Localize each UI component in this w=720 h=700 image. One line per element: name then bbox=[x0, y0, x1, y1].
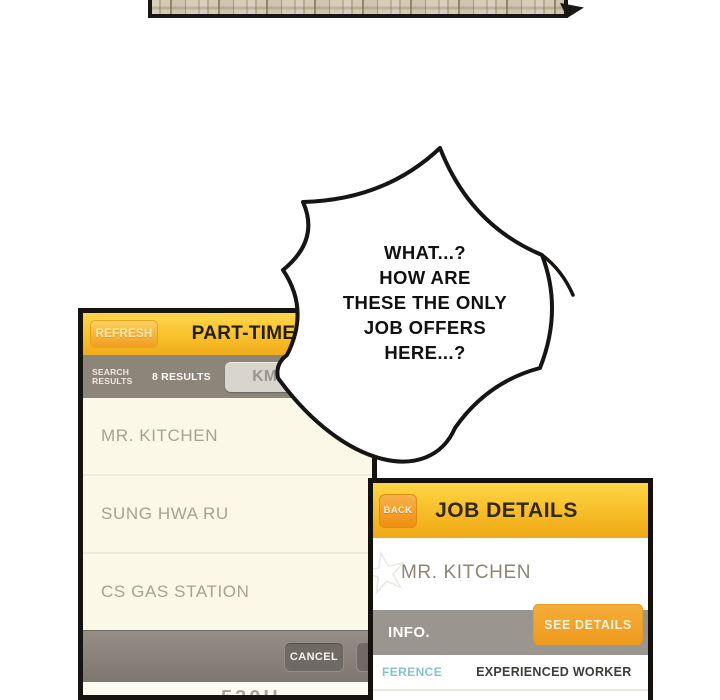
bubble-line: WHAT...? bbox=[295, 240, 555, 265]
job-listing-row[interactable]: SUNG HWA RU bbox=[83, 476, 372, 554]
details-panel-title: JOB DETAILS bbox=[417, 499, 642, 523]
search-footer-strip: 530H bbox=[83, 682, 372, 695]
business-name-section: ☆ MR. KITCHEN bbox=[373, 538, 648, 610]
cutoff-text: 530H bbox=[221, 687, 281, 695]
search-bottom-bar: CANCEL bbox=[83, 630, 372, 682]
job-listing-row[interactable]: CS GAS STATION bbox=[83, 554, 372, 630]
preference-value: EXPERIENCED WORKER bbox=[476, 665, 631, 679]
back-button[interactable]: BACK bbox=[379, 494, 417, 528]
preference-label: FERENCE bbox=[382, 665, 442, 679]
info-bar: INFO. SEE DETAILS bbox=[373, 610, 648, 655]
business-name: MR. KITCHEN bbox=[373, 538, 648, 608]
preference-row: FERENCE EXPERIENCED WORKER bbox=[373, 655, 648, 691]
bubble-line: JOB OFFERS bbox=[295, 315, 555, 340]
bubble-line: HOW ARE bbox=[295, 265, 555, 290]
results-count: 8 RESULTS bbox=[152, 371, 211, 383]
speech-bubble-text: WHAT...? HOW ARE THESE THE ONLY JOB OFFE… bbox=[295, 240, 555, 365]
see-details-button[interactable]: SEE DETAILS bbox=[533, 604, 643, 645]
bubble-line: HERE...? bbox=[295, 340, 555, 365]
comic-panel-strip bbox=[148, 0, 568, 18]
cancel-button[interactable]: CANCEL bbox=[284, 642, 344, 672]
job-details-panel: BACK JOB DETAILS ☆ MR. KITCHEN INFO. SEE… bbox=[368, 478, 653, 700]
details-panel-body bbox=[373, 691, 648, 700]
search-results-label: SEARCH RESULTS bbox=[92, 368, 144, 386]
details-panel-header: BACK JOB DETAILS bbox=[373, 483, 648, 538]
refresh-button[interactable]: REFRESH bbox=[90, 320, 158, 348]
bubble-line: THESE THE ONLY bbox=[295, 290, 555, 315]
